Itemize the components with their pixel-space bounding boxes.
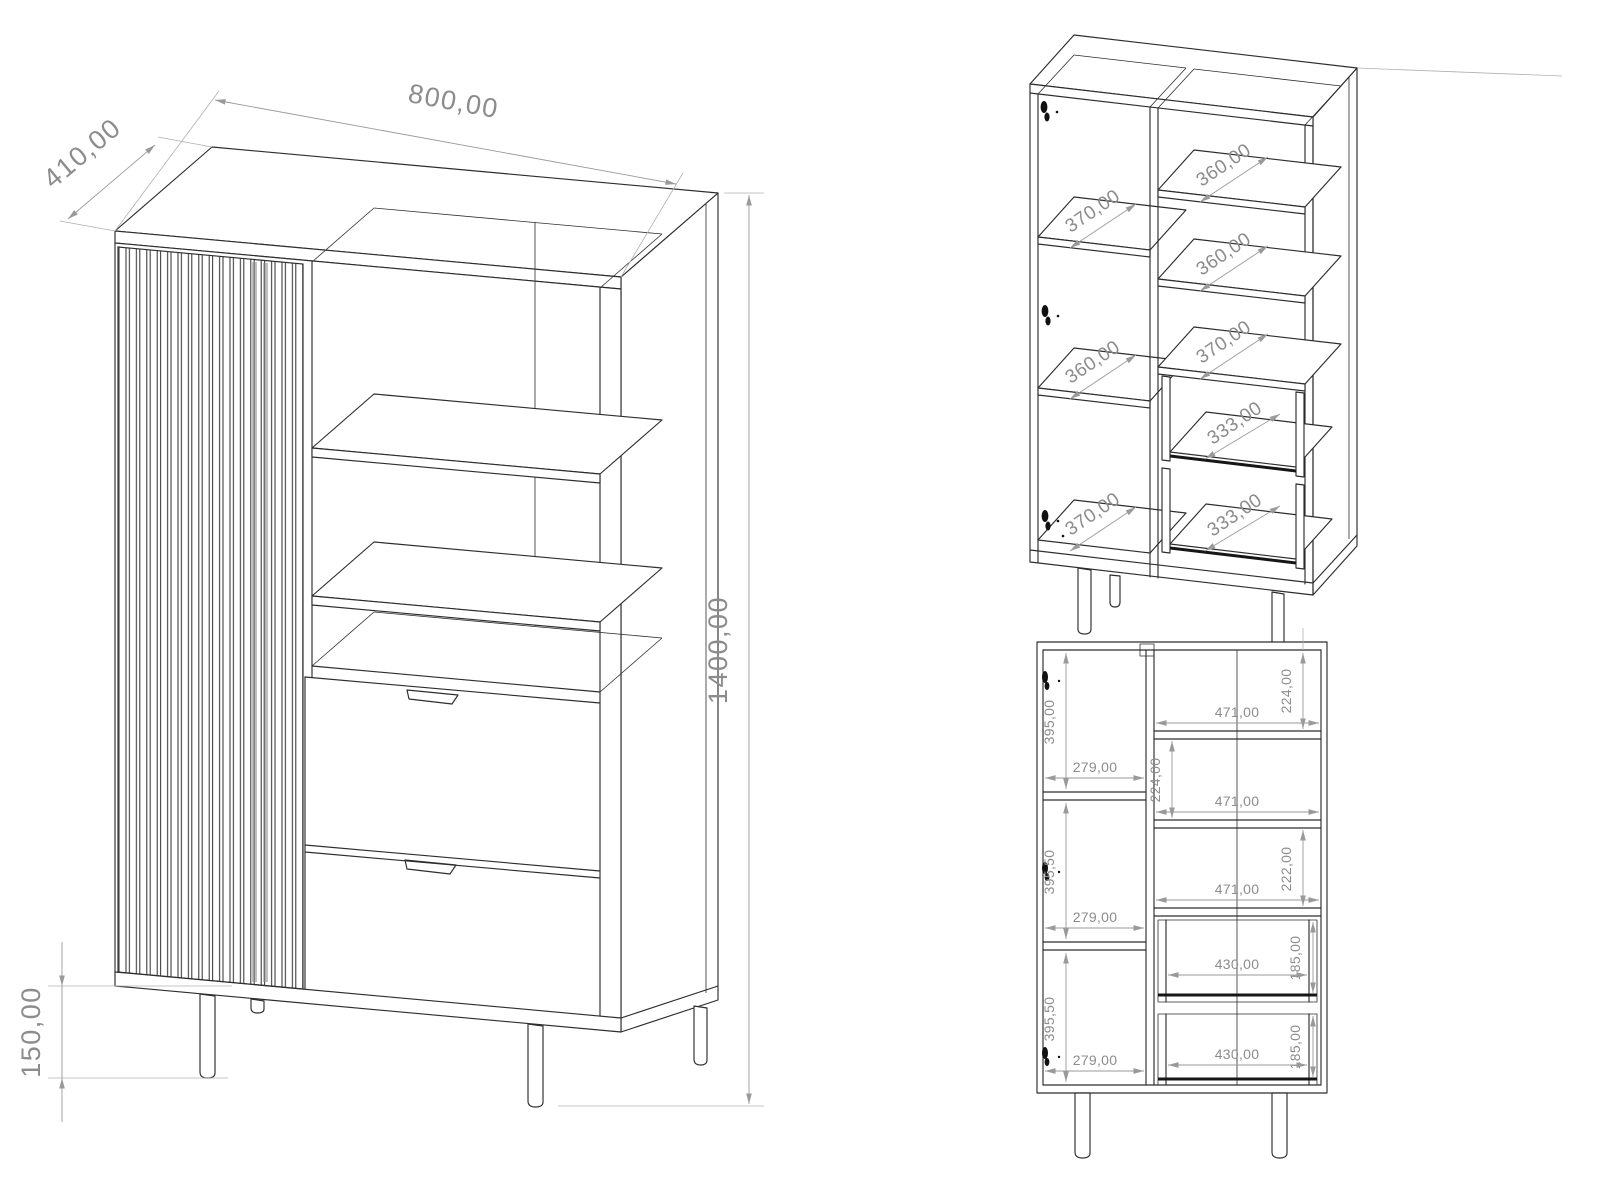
leg-back-right <box>694 1006 707 1065</box>
door-slat-shaded-1 <box>252 262 257 982</box>
interior-isometric-view: 370,00 360,00 370,00 360,00 360,00 370,0… <box>1030 35 1562 661</box>
dim-left-comp1-width: 279,00 <box>1073 759 1118 775</box>
dim-right-comp3-width: 471,00 <box>1215 881 1260 897</box>
dim-drawer1-width: 430,00 <box>1215 956 1260 972</box>
dim-drawer2-height: 185,00 <box>1287 1025 1303 1070</box>
dim-label-leg-height: 150,00 <box>16 986 46 1078</box>
drawing-page: 800,00 410,00 1400,00 150,00 <box>0 0 1600 1200</box>
cabinet-legs <box>1075 1093 1287 1158</box>
dim-right-comp1-width: 471,00 <box>1215 704 1260 720</box>
front-elevation-view: 395,00 279,00 395,50 279,00 395,50 279,0… <box>1037 628 1327 1158</box>
door-slat-shaded-2 <box>263 263 268 982</box>
dim-left-comp3-width: 279,00 <box>1073 1052 1118 1068</box>
hinge <box>1042 305 1060 326</box>
side-panel <box>1313 68 1357 595</box>
dim-label-height: 1400,00 <box>703 596 733 704</box>
dim-left-comp2-height: 395,50 <box>1041 850 1057 895</box>
dim-right-comp2-height: 224,00 <box>1147 758 1163 803</box>
dim-drawer2-width: 430,00 <box>1215 1046 1260 1062</box>
dim-label-width: 800,00 <box>406 78 502 124</box>
main-isometric-view: 800,00 410,00 1400,00 150,00 <box>16 78 764 1122</box>
dim-right-comp2-width: 471,00 <box>1215 793 1260 809</box>
leg-back-left <box>251 999 264 1013</box>
dim-right-comp1-height: 224,00 <box>1278 669 1294 714</box>
technical-drawing-canvas: 800,00 410,00 1400,00 150,00 <box>0 0 1600 1200</box>
dim-label-depth: 410,00 <box>37 112 126 194</box>
dim-right-comp3-height: 222,00 <box>1278 847 1294 892</box>
dim-left-comp2-width: 279,00 <box>1073 909 1118 925</box>
dim-left-comp1-height: 395,00 <box>1041 700 1057 745</box>
hinge <box>1041 101 1059 122</box>
dim-drawer1-height: 185,00 <box>1287 936 1303 981</box>
stray-extension-line <box>1357 68 1562 76</box>
slatted-door <box>118 247 303 989</box>
interior-right-shelves <box>1158 150 1341 391</box>
leg-front-right <box>528 1024 543 1107</box>
dim-left-comp3-height: 395,50 <box>1041 997 1057 1042</box>
leg-front-left <box>200 994 215 1078</box>
